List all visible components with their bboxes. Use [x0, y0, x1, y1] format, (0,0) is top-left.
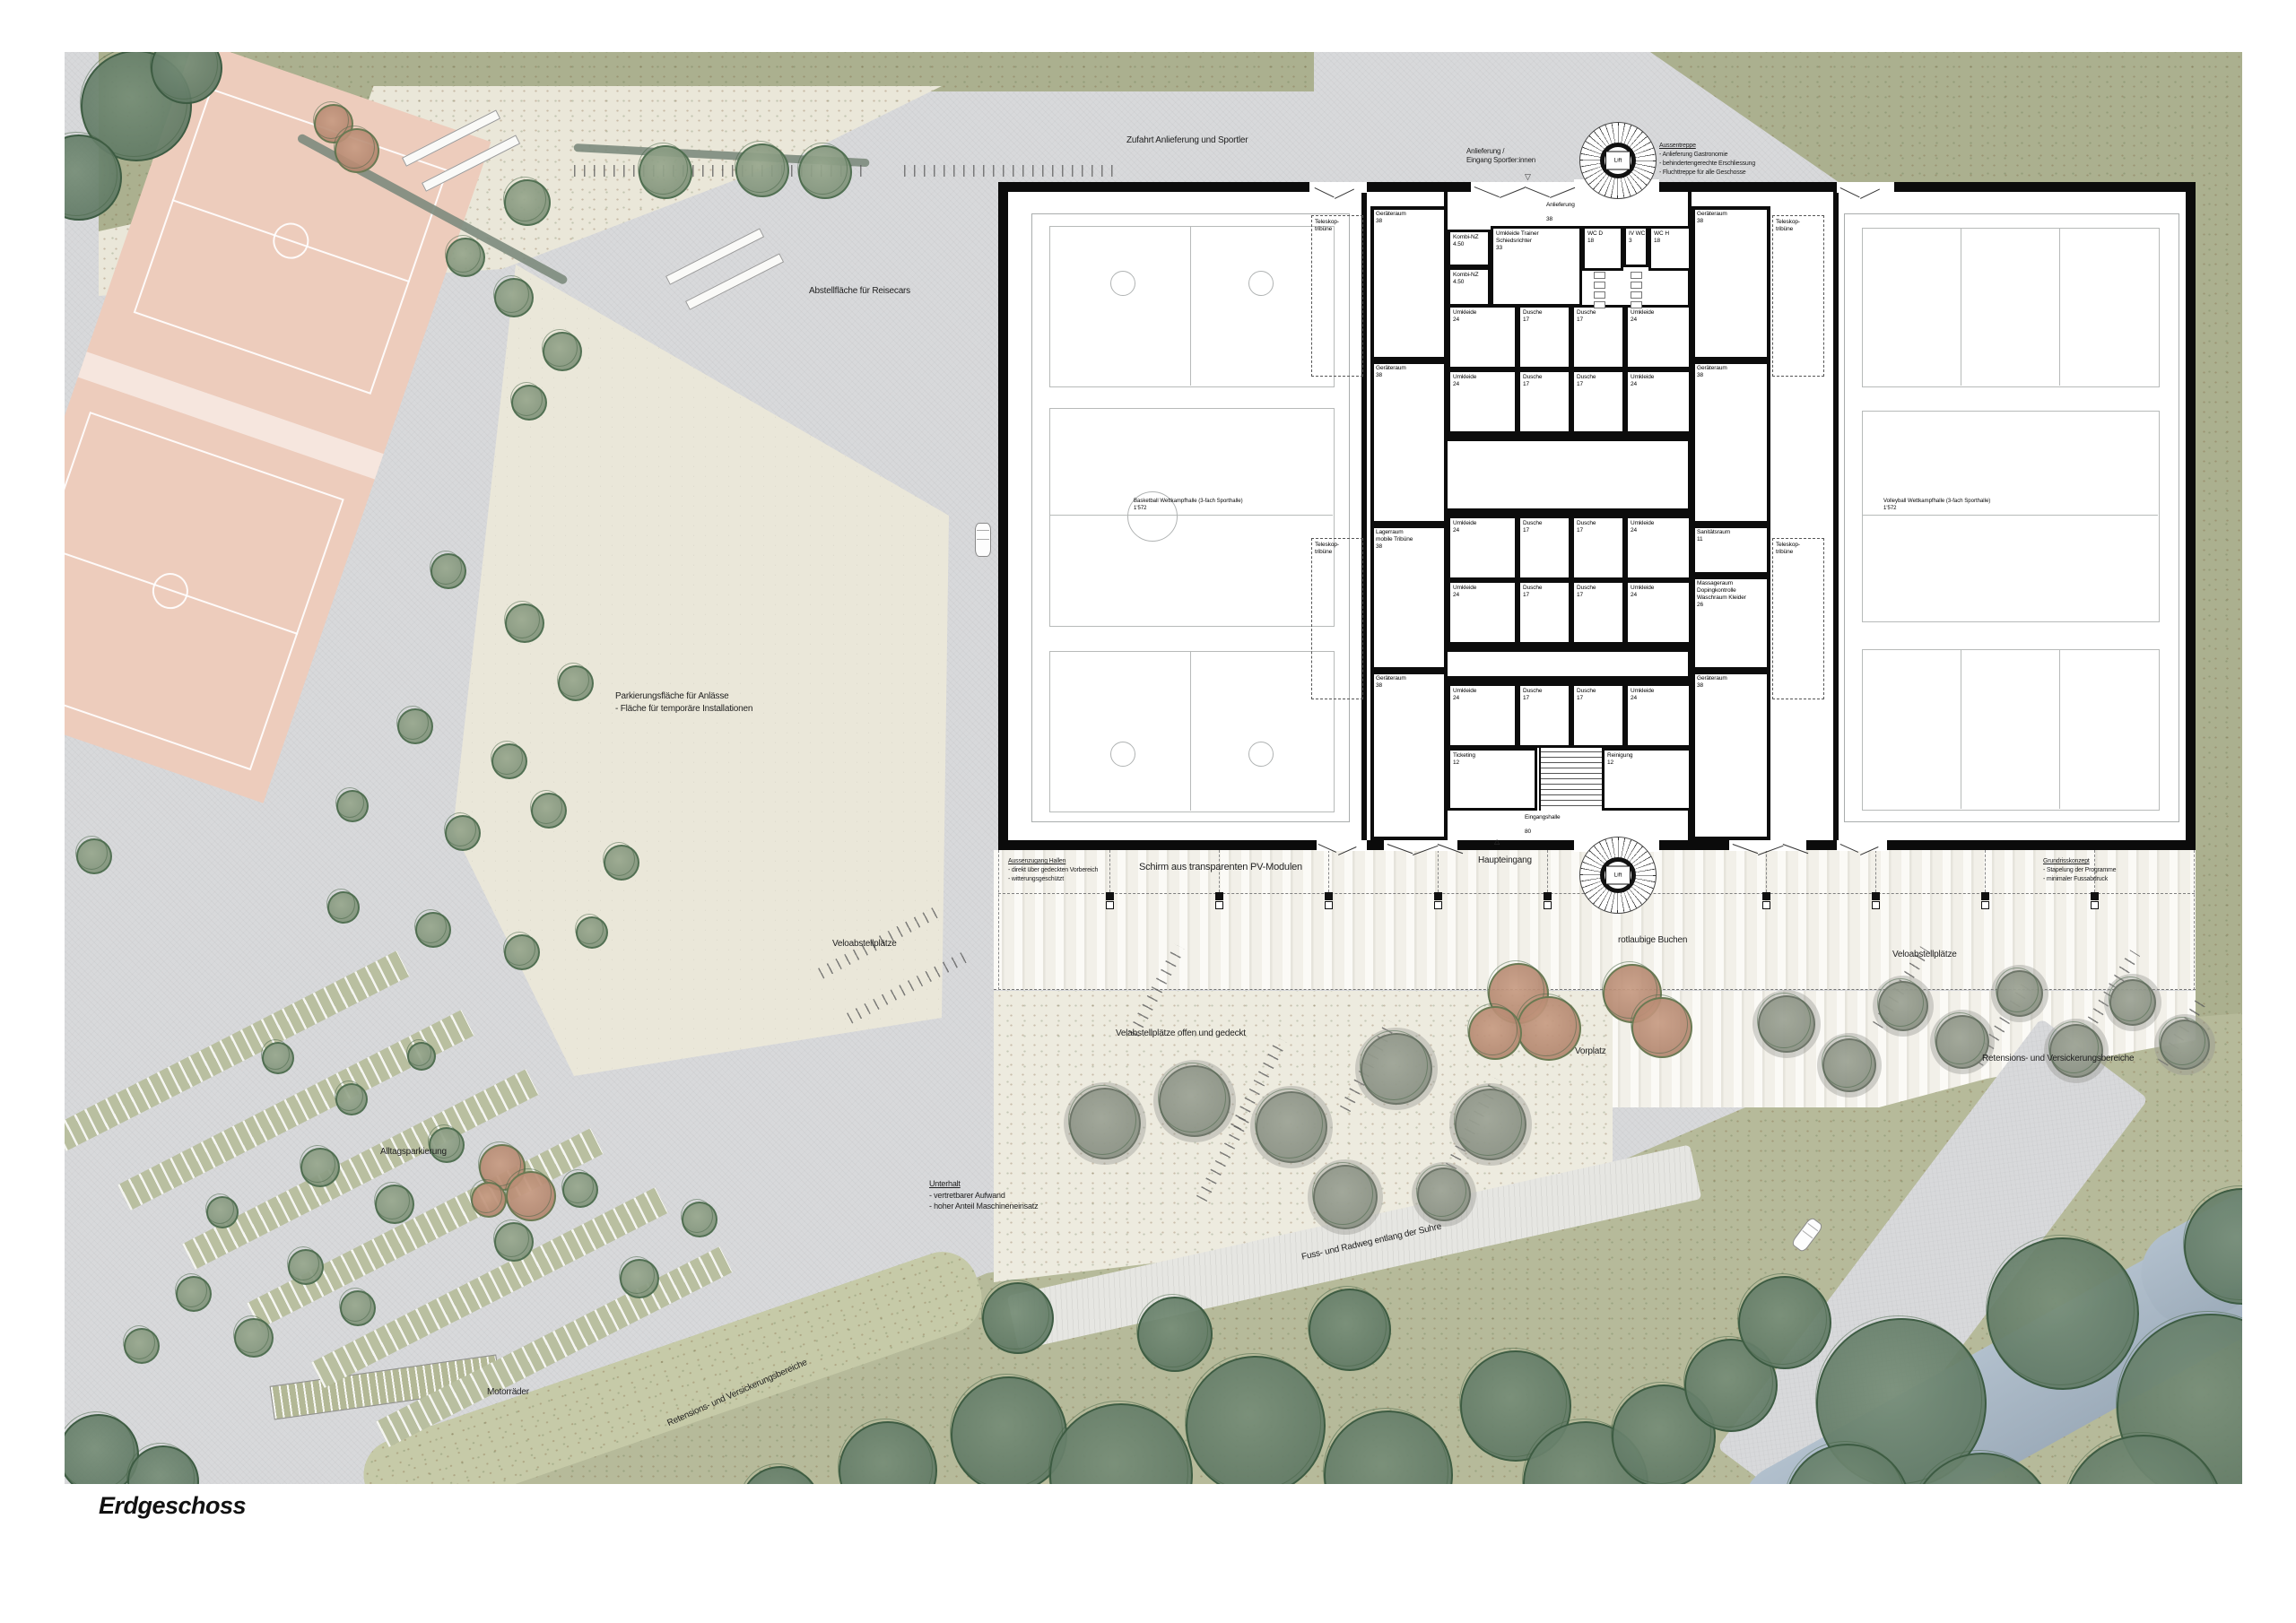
room-label-dusche: Dusche17 [1523, 520, 1542, 534]
room-name: Ticketing [1453, 752, 1475, 759]
tree [576, 916, 608, 949]
annotation-aussentreppe: Aussentreppe - Anlieferung Gastronomie -… [1659, 142, 1755, 178]
room-label-wc_d: WC D18 [1587, 230, 1603, 245]
room-name: Umkleide [1631, 309, 1654, 317]
tree [2063, 1435, 2224, 1596]
tree [505, 603, 544, 643]
annotation-item: - Stapelung der Programme [2043, 866, 2116, 875]
canopy-column-base [1872, 901, 1880, 909]
room-area: 24 [1631, 381, 1654, 388]
label-velo-rechts: Veloabstellplätze [1892, 949, 1957, 961]
tree [262, 1042, 294, 1074]
court-left-bottom [1049, 651, 1335, 812]
room-area: 24 [1453, 317, 1476, 324]
room-area: 80 [1525, 829, 1561, 836]
canopy-dash [1547, 850, 1548, 892]
room-area: 17 [1577, 527, 1596, 534]
label-velo-links: Veloabstellplätze [832, 938, 897, 950]
tree [1313, 1165, 1378, 1229]
label-line: Eingang Sportler:innen [1466, 156, 1535, 165]
label-schirm: Schirm aus transparenten PV-Modulen [1139, 861, 1302, 874]
room-label-umkleide: Umkleide24 [1631, 688, 1654, 702]
room-name: Dusche [1523, 309, 1542, 317]
room-label-umkleide: Umkleide24 [1631, 520, 1654, 534]
hall-right-label: Volleyball Wettkampfhalle (3-fach Sporth… [1883, 499, 1990, 513]
court-left-top [1049, 226, 1335, 387]
room-name: Dusche [1577, 309, 1596, 317]
tree [335, 128, 379, 173]
tree [300, 1148, 340, 1187]
court-right-bottom-line [2059, 649, 2060, 809]
canopy-column [1981, 892, 1989, 900]
room-geraeteraum [1370, 206, 1448, 360]
room-name: Geräteraum [1697, 211, 1727, 218]
room-label-reinigung: Reinigung12 [1607, 752, 1632, 767]
canopy-column [1872, 892, 1880, 900]
tree [504, 179, 551, 226]
tree [471, 1182, 507, 1218]
tree [36, 135, 122, 221]
tree [511, 385, 547, 421]
room-label-geraeteraum: Geräteraum38 [1697, 211, 1727, 225]
court-right-bottom [1862, 649, 2160, 811]
court-right-main-line [1862, 515, 2158, 516]
room-name: Geräteraum [1697, 365, 1727, 372]
annotation-title: Grundrisskonzept [2043, 857, 2116, 866]
hall-left-label: Basketball Wettkampfhalle (3-fach Sporth… [1134, 499, 1243, 513]
room-area: 18 [1587, 238, 1603, 245]
lift: Lift [1605, 152, 1631, 170]
label-velo-offen: Velabstellplätze offen und gedeckt [1116, 1028, 1246, 1040]
room-name: Kombi-NZ [1453, 272, 1478, 279]
tree [430, 553, 466, 589]
tree [234, 1318, 274, 1358]
court-key-circle [1110, 271, 1135, 296]
tree [1361, 1033, 1432, 1105]
room-name: Umkleide [1631, 520, 1654, 527]
tree [1256, 1091, 1327, 1163]
court-key-circle [1248, 271, 1274, 296]
canopy-dash [1985, 850, 1986, 892]
room-area: 24 [1453, 592, 1476, 599]
tree [735, 143, 789, 197]
canopy-column [2091, 892, 2099, 900]
tree [543, 332, 582, 371]
canopy-column-base [1106, 901, 1114, 909]
room-label-teleskop: Teleskop- tribüne [1315, 542, 1339, 556]
room-area: 17 [1523, 317, 1542, 324]
room-name: Geräteraum [1376, 211, 1406, 218]
room-label-anlieferung: Anlieferung 38 [1546, 195, 1575, 231]
canopy-column [1544, 892, 1552, 900]
canopy-column-base [1215, 901, 1223, 909]
tree [1186, 1356, 1326, 1496]
label-haupteingang: Haupteingang [1478, 855, 1532, 867]
room-geraeteraum [1692, 671, 1770, 840]
tree [639, 145, 692, 199]
court-right-main [1862, 411, 2160, 622]
room-label-umkleide: Umkleide24 [1453, 520, 1476, 534]
canopy-dash [1328, 850, 1329, 892]
tree [76, 838, 112, 874]
room-area: 11 [1697, 536, 1730, 543]
wall [1448, 676, 1692, 683]
canopy-column [1215, 892, 1223, 900]
room-label-umkleide: Umkleide24 [1453, 585, 1476, 599]
site-plan-page: Basketball Wettkampfhalle (3-fach Sporth… [0, 0, 2296, 1623]
tree [397, 708, 433, 744]
room-name: Umkleide [1453, 520, 1476, 527]
tree [327, 891, 360, 924]
room-area: 24 [1631, 317, 1654, 324]
annotation-item: - hoher Anteil Maschineneinsatz [929, 1201, 1038, 1212]
room-label-dusche: Dusche17 [1577, 374, 1596, 388]
annotation-title: Unterhalt [929, 1178, 1038, 1190]
room-label-iv_wc: IV WC3 [1629, 230, 1645, 245]
tree [506, 1171, 556, 1221]
room-name: Dusche [1523, 688, 1542, 695]
room-name: Teleskop- tribüne [1315, 542, 1339, 556]
room-name: Teleskop- tribüne [1776, 542, 1800, 556]
room-area: 4.50 [1453, 279, 1478, 286]
tree [1069, 1088, 1141, 1159]
room-area: 38 [1376, 543, 1413, 551]
room-area: 17 [1523, 381, 1542, 388]
annotation-title: Aussenzugang Hallen [1008, 857, 1098, 866]
room-name: Geräteraum [1376, 365, 1406, 372]
tree [1137, 1297, 1213, 1372]
room-name: IV WC [1629, 230, 1645, 238]
room-label-ticketing: Ticketing12 [1453, 752, 1475, 767]
tree [1910, 1453, 2054, 1596]
annotation-item: - behindertengerechte Erschliessung [1659, 160, 1755, 169]
room-label-teleskop: Teleskop- tribüne [1776, 219, 1800, 233]
tree [1785, 1444, 1910, 1569]
wall [1833, 192, 1839, 840]
annotation-item: - witterungsgeschützt [1008, 875, 1098, 884]
car [975, 523, 991, 557]
annotation-item: - vertretbarer Aufwand [929, 1190, 1038, 1202]
room-name: Geräteraum [1697, 675, 1727, 682]
room-label-kombi: Kombi-NZ4.50 [1453, 272, 1478, 286]
tree [1631, 997, 1692, 1058]
teleskoptribuene [1772, 538, 1824, 699]
wc-stall [1594, 282, 1605, 289]
court-right-top-line [2059, 228, 2060, 386]
tree [151, 32, 222, 104]
canopy-column-base [1544, 901, 1552, 909]
room-label-umkleide: Umkleide24 [1453, 309, 1476, 324]
room-name: Lagerraum mobile Tribüne [1376, 529, 1413, 543]
canopy-column-base [2091, 901, 2099, 909]
label-retension-rechts: Retensions- und Versickerungsbereiche [1982, 1053, 2134, 1065]
wall-opening [1384, 840, 1457, 851]
room-name: Umkleide [1631, 585, 1654, 592]
canopy-dash-left [998, 850, 999, 990]
room-name: Teleskop- tribüne [1315, 219, 1339, 233]
room-label-dusche: Dusche17 [1523, 374, 1542, 388]
label-vorplatz: Vorplatz [1575, 1046, 1606, 1058]
hall-right-area: 1'572 [1883, 506, 1990, 513]
canopy-column-base [1434, 901, 1442, 909]
wc-stall [1594, 301, 1605, 308]
tree [446, 238, 485, 277]
tree [206, 1196, 239, 1228]
annotation-title: Aussentreppe [1659, 142, 1755, 151]
tree [494, 1222, 534, 1262]
wall-opening [1309, 182, 1367, 193]
room-area: 17 [1577, 695, 1596, 702]
site-plan: Basketball Wettkampfhalle (3-fach Sporth… [0, 0, 2296, 1623]
tree [682, 1202, 717, 1237]
room-name: Sanitätsraum [1697, 529, 1730, 536]
wall [1448, 434, 1692, 441]
room-area: 3 [1629, 238, 1645, 245]
room-area: 24 [1631, 695, 1654, 702]
teleskoptribuene [1311, 215, 1363, 377]
room-name: WC H [1654, 230, 1669, 238]
tree [336, 790, 369, 822]
annotation-unterhalt: Unterhalt - vertretbarer Aufwand - hoher… [929, 1178, 1038, 1212]
label-line: - Fläche für temporäre Installationen [615, 703, 752, 716]
wc-stall [1631, 291, 1642, 299]
room-label-teleskop: Teleskop- tribüne [1776, 542, 1800, 556]
room-name: Anlieferung [1546, 202, 1575, 209]
wc-stall [1631, 282, 1642, 289]
room-name: Umkleide [1631, 688, 1654, 695]
canopy-dash [1875, 850, 1876, 892]
spiral-stair-bottom: Lift [1579, 837, 1657, 914]
tree [1049, 1403, 1193, 1547]
tree [2109, 979, 2156, 1026]
canopy-column [1106, 892, 1114, 900]
tree [407, 1042, 436, 1071]
room-name: WC D [1587, 230, 1603, 238]
room-name: Umkleide [1453, 309, 1476, 317]
room-area: 12 [1453, 759, 1475, 767]
page-title: Erdgeschoss [99, 1492, 246, 1520]
hall-left-name: Basketball Wettkampfhalle (3-fach Sporth… [1134, 499, 1243, 506]
room-name: Umkleide [1453, 374, 1476, 381]
tree [415, 912, 451, 948]
tree [1878, 981, 1928, 1031]
wc-stall [1631, 272, 1642, 279]
room-label-umkleide: Umkleide24 [1631, 585, 1654, 599]
room-name: Dusche [1577, 520, 1596, 527]
annotation-aussenzugang: Aussenzugang Hallen - direkt über gedeck… [1008, 857, 1098, 884]
spiral-stair-top: Lift [1579, 122, 1657, 199]
room-area: 26 [1697, 602, 1746, 609]
room-name: Dusche [1577, 585, 1596, 592]
room-label-dusche: Dusche17 [1523, 688, 1542, 702]
canopy-column [1434, 892, 1442, 900]
room-label-dusche: Dusche17 [1577, 585, 1596, 599]
room-area: 33 [1496, 245, 1539, 252]
tree [1987, 1237, 2139, 1390]
room-label-umkleide: Umkleide24 [1631, 309, 1654, 324]
room-label-lagerraum: Lagerraum mobile Tribüne38 [1376, 529, 1413, 551]
room-area: 24 [1631, 527, 1654, 534]
room-name: Massageraum Dopingkontrolle Waschraum Kl… [1697, 580, 1746, 602]
room-name: Umkleide [1453, 585, 1476, 592]
tree [1517, 996, 1581, 1061]
court-right-top-line [1961, 228, 1961, 386]
tree [1935, 1015, 1989, 1069]
annotation-item: - direkt über gedeckten Vorbereich [1008, 866, 1098, 875]
court-right-bottom-line [1961, 649, 1961, 809]
room-area: 38 [1376, 682, 1406, 690]
label-parkierung: Parkierungsfläche für Anlässe - Fläche f… [615, 690, 752, 715]
room-area: 17 [1577, 592, 1596, 599]
tree [2049, 1024, 2103, 1078]
room-label-eingangshalle: Eingangshalle 80 [1525, 807, 1561, 844]
court-left-bottom-line [1190, 651, 1191, 811]
tree [1309, 1289, 1391, 1371]
tree [491, 743, 527, 779]
tree [340, 1290, 376, 1326]
court-right-top [1862, 228, 2160, 387]
room-label-dusche: Dusche17 [1523, 585, 1542, 599]
tree [2184, 1188, 2296, 1305]
court-left-main [1049, 408, 1335, 627]
room-label-geraeteraum: Geräteraum38 [1697, 365, 1727, 379]
wc-stall [1594, 291, 1605, 299]
room-label-umkleide: Umkleide24 [1453, 374, 1476, 388]
room-geraeteraum [1692, 206, 1770, 360]
tree [1996, 970, 2043, 1017]
tree [1417, 1167, 1471, 1221]
room-label-geraeteraum: Geräteraum38 [1697, 675, 1727, 690]
room-name: Reinigung [1607, 752, 1632, 759]
room-label-kombi: Kombi-NZ4.50 [1453, 234, 1478, 248]
tree [445, 815, 481, 851]
canopy-dash [1109, 850, 1110, 892]
room-area: 24 [1453, 381, 1476, 388]
room-name: Geräteraum [1376, 675, 1406, 682]
hall-left-area: 1'572 [1134, 506, 1243, 513]
tree [176, 1276, 212, 1312]
canopy-column [1762, 892, 1770, 900]
canopy-dash [1766, 850, 1767, 892]
room-label-trainer: Umkleide Trainer Schiedsrichter33 [1496, 230, 1539, 252]
tree [839, 1421, 937, 1520]
tree [1758, 995, 1815, 1053]
label-buchen: rotlaubige Buchen [1618, 934, 1687, 947]
tree [798, 145, 852, 199]
canopy-column [1325, 892, 1333, 900]
tree [1455, 1089, 1526, 1160]
room-label-dusche: Dusche17 [1577, 309, 1596, 324]
tree [124, 1328, 160, 1364]
room-name: Dusche [1523, 374, 1542, 381]
tree [1822, 1038, 1876, 1092]
annotation-item: - minimaler Fussabdruck [2043, 875, 2116, 884]
tree [531, 793, 567, 829]
canopy-column-base [1325, 901, 1333, 909]
arrow-down-icon: ▽ [1525, 172, 1531, 182]
room-area: 17 [1577, 381, 1596, 388]
room-label-sanitaet: Sanitätsraum11 [1697, 529, 1730, 543]
tree [1324, 1410, 1453, 1540]
court-left-main-line [1049, 515, 1333, 516]
tree [982, 1282, 1054, 1354]
wc-stall [1594, 272, 1605, 279]
label-line: Anlieferung / [1466, 147, 1535, 156]
tree [740, 1466, 821, 1547]
room-name: Umkleide [1631, 374, 1654, 381]
lift: Lift [1605, 866, 1631, 885]
annotation-item: - Anlieferung Gastronomie [1659, 151, 1755, 160]
room-area: 17 [1577, 317, 1596, 324]
room-name: Eingangshalle [1525, 814, 1561, 821]
tree [494, 278, 534, 317]
room-area: 38 [1697, 218, 1727, 225]
room-area: 24 [1631, 592, 1654, 599]
room-area: 38 [1697, 682, 1727, 690]
hall-right-name: Volleyball Wettkampfhalle (3-fach Sporth… [1883, 499, 1990, 506]
room-label-wc_h: WC H18 [1654, 230, 1669, 245]
room-name: Kombi-NZ [1453, 234, 1478, 241]
tree [604, 845, 639, 881]
entrance-stairs [1539, 746, 1605, 811]
room-area: 4.50 [1453, 241, 1478, 248]
tree [562, 1172, 598, 1208]
room-name: Umkleide [1453, 688, 1476, 695]
wc-stall [1631, 301, 1642, 308]
room-area: 38 [1697, 372, 1727, 379]
court-key-circle [1110, 742, 1135, 767]
label-alltagsparkierung: Alltagsparkierung [380, 1146, 447, 1159]
room-name: Dusche [1523, 520, 1542, 527]
room-label-geraeteraum: Geräteraum38 [1376, 211, 1406, 225]
room-area: 24 [1453, 527, 1476, 534]
label-anlieferung-eingang: Anlieferung / Eingang Sportler:innen [1466, 147, 1535, 166]
teleskoptribuene [1311, 538, 1363, 699]
canopy-dash [1438, 850, 1439, 892]
tree [1159, 1065, 1231, 1137]
room-area: 17 [1523, 527, 1542, 534]
tree [558, 665, 594, 701]
room-label-dusche: Dusche17 [1523, 309, 1542, 324]
label-zufahrt: Zufahrt Anlieferung und Sportler [1126, 135, 1248, 147]
room-name: Umkleide Trainer Schiedsrichter [1496, 230, 1539, 245]
court-key-circle [1248, 742, 1274, 767]
room-label-umkleide: Umkleide24 [1631, 374, 1654, 388]
court-left-top-line [1190, 226, 1191, 386]
room-geraeteraum [1370, 671, 1448, 840]
tree [620, 1259, 659, 1298]
tree [335, 1083, 368, 1115]
room-label-dusche: Dusche17 [1577, 688, 1596, 702]
label-motorraeder: Motorräder [487, 1386, 529, 1399]
room-area: 17 [1523, 592, 1542, 599]
room-name: Dusche [1523, 585, 1542, 592]
room-label-teleskop: Teleskop- tribüne [1315, 219, 1339, 233]
teleskoptribuene [1772, 215, 1824, 377]
wall [1448, 645, 1692, 652]
bike-rack-ticks [904, 165, 1119, 177]
canopy-column-base [1981, 901, 1989, 909]
room-label-geraeteraum: Geräteraum38 [1376, 365, 1406, 379]
room-area: 38 [1376, 218, 1406, 225]
room-name: Dusche [1577, 688, 1596, 695]
room-area: 24 [1453, 695, 1476, 702]
tree [1468, 1006, 1522, 1060]
annotation-item: - Fluchttreppe für alle Geschosse [1659, 169, 1755, 178]
room-area: 38 [1546, 216, 1575, 223]
canopy-column-base [1762, 901, 1770, 909]
room-area: 12 [1607, 759, 1632, 767]
